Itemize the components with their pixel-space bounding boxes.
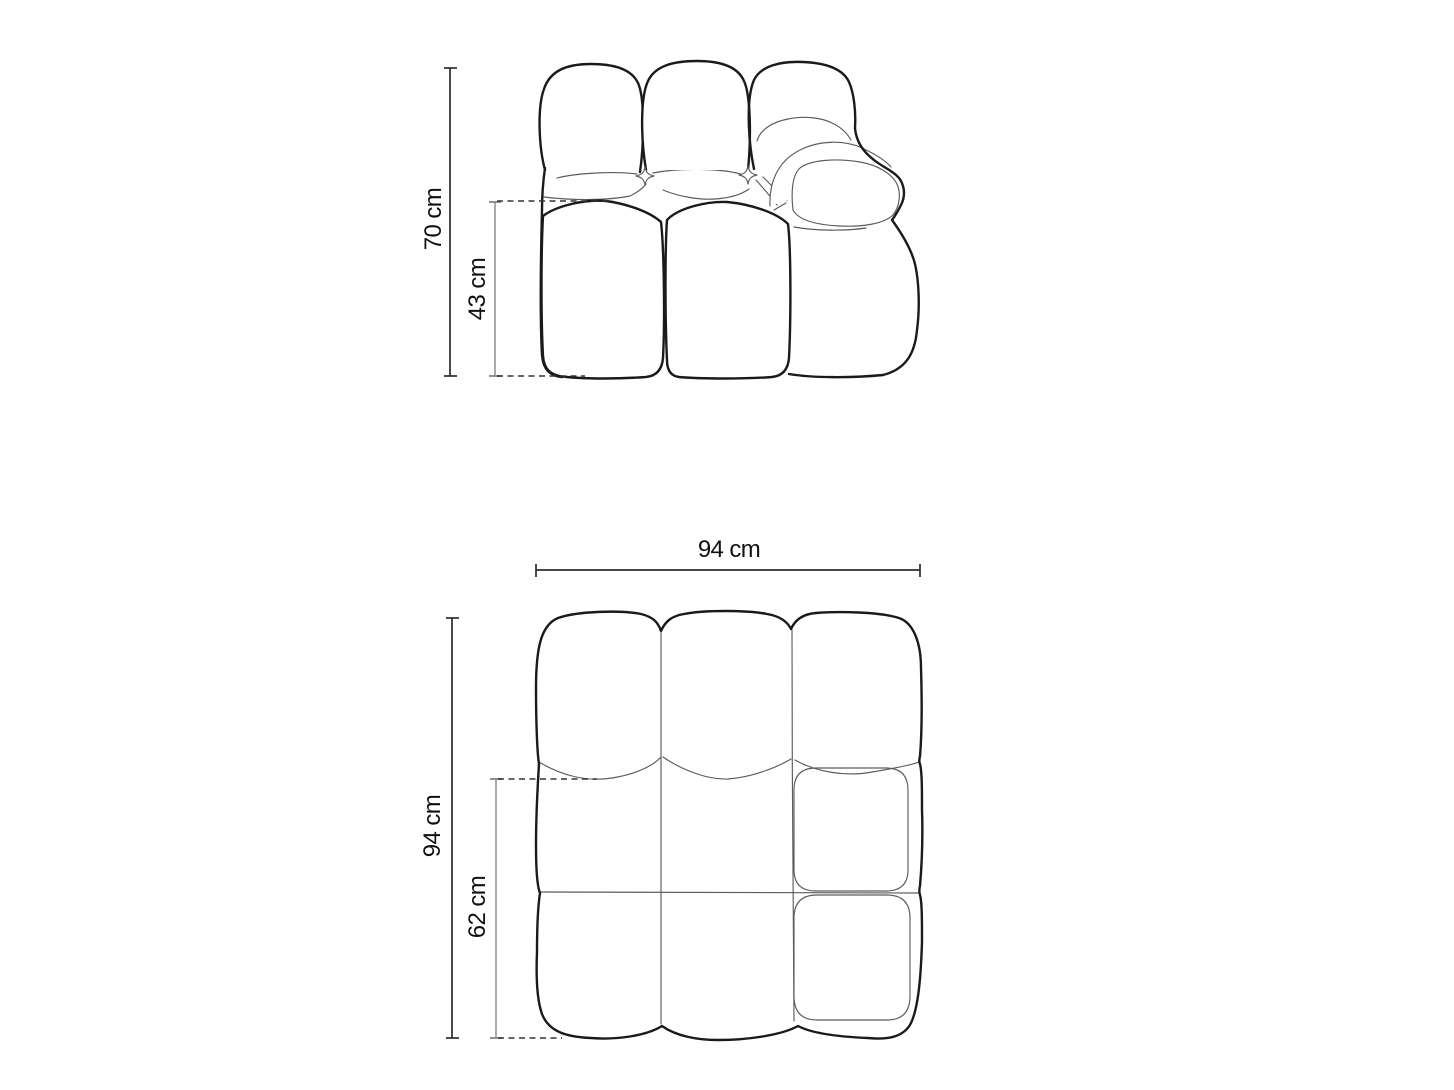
total-height-label: 70 cm bbox=[420, 188, 447, 250]
seat-depth-label: 62 cm bbox=[464, 876, 491, 938]
front-elevation-view bbox=[540, 61, 919, 379]
diagram-canvas: 70 cm 43 cm 94 cm 94 cm bbox=[0, 0, 1454, 1090]
armrest-top-cushion-line bbox=[757, 117, 851, 141]
back-band-arc-left bbox=[557, 173, 637, 178]
row-separator bbox=[541, 892, 918, 893]
armrest-pad-middle bbox=[794, 768, 908, 891]
seat-roll-arc-left bbox=[544, 184, 646, 200]
seat-cushion-right bbox=[666, 202, 791, 379]
armrest-front-cushion bbox=[792, 160, 899, 226]
sofa-dimension-diagram: 70 cm 43 cm 94 cm 94 cm bbox=[0, 0, 1454, 1090]
back-band-arc-middle bbox=[653, 169, 741, 174]
back-cushion-bottom-arc-left bbox=[539, 757, 661, 779]
back-cushion-left bbox=[540, 64, 644, 172]
plan-outer-outline bbox=[536, 611, 922, 1040]
width-label: 94 cm bbox=[698, 536, 760, 563]
total-height-dimension: 70 cm bbox=[420, 68, 457, 376]
total-depth-dimension: 94 cm bbox=[419, 618, 459, 1038]
armrest-pad-front bbox=[794, 895, 910, 1020]
width-dimension: 94 cm bbox=[536, 536, 920, 577]
back-cushion-middle bbox=[642, 61, 750, 170]
back-cushion-bottom-arc-middle bbox=[663, 757, 791, 779]
seat-cushion-left bbox=[542, 201, 665, 379]
seat-depth-dimension: 62 cm bbox=[464, 779, 597, 1038]
body-bottom-right-edge bbox=[789, 374, 883, 377]
total-depth-label: 94 cm bbox=[419, 795, 446, 857]
armrest-underside-line bbox=[794, 227, 866, 230]
seat-roll-arc-middle bbox=[663, 189, 749, 199]
seat-height-label: 43 cm bbox=[464, 258, 491, 320]
top-plan-view bbox=[536, 611, 922, 1040]
